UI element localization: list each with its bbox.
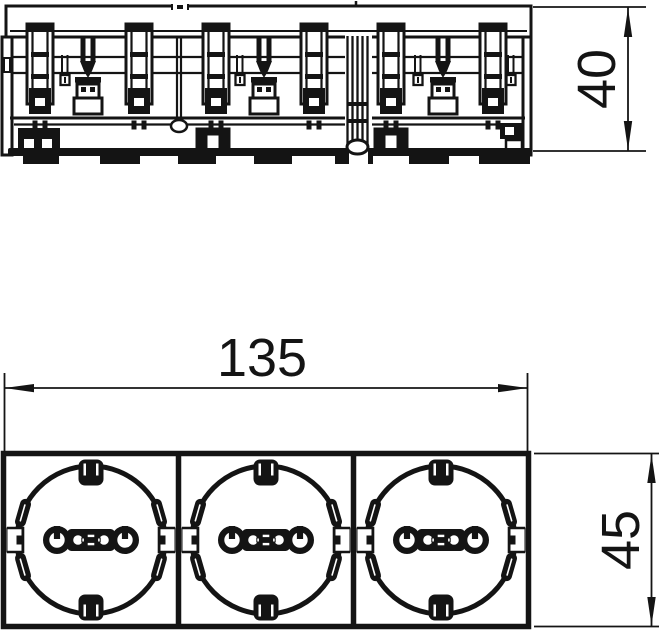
- latch-clip: [414, 55, 423, 85]
- clip-tower: [480, 24, 506, 114]
- latch-clip: [236, 55, 245, 85]
- end-wall-right: [523, 37, 531, 155]
- technical-drawing-page: 40 135 45: [0, 0, 664, 631]
- clip-tower: [301, 24, 327, 114]
- latch-clip: [61, 55, 70, 85]
- housing-lid: [6, 6, 531, 37]
- contact-tower: [429, 38, 457, 114]
- arrowhead-right: [498, 384, 528, 392]
- end-wall-left: [2, 37, 12, 155]
- arrowhead-up: [624, 8, 632, 37]
- dimension-height-label: 45: [591, 510, 651, 570]
- arrowhead-left: [5, 384, 35, 392]
- arrowhead-down: [624, 121, 632, 150]
- technical-drawing: 40 135 45: [0, 0, 664, 631]
- clip-tower: [203, 24, 229, 114]
- clip-tower: [27, 24, 53, 114]
- dimension-depth: 40: [533, 7, 646, 151]
- contact-tower: [74, 38, 102, 114]
- dimension-depth-label: 40: [567, 49, 627, 109]
- clip-tower: [126, 24, 152, 114]
- arrowhead-down: [647, 597, 655, 626]
- base-bar: [8, 148, 531, 156]
- contact-tower: [250, 38, 278, 114]
- arrowhead-up: [647, 455, 655, 484]
- latch-clip: [507, 55, 516, 85]
- dimension-width: 135: [5, 328, 528, 451]
- front-view: 135 45: [4, 328, 660, 627]
- clip-tower: [378, 24, 404, 114]
- dimension-height: 45: [534, 454, 659, 627]
- side-elevation-view: 40: [2, 1, 646, 165]
- dimension-width-label: 135: [217, 328, 307, 388]
